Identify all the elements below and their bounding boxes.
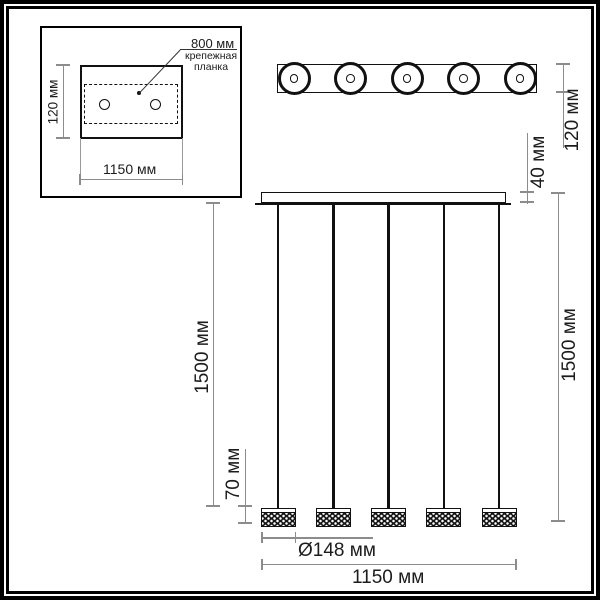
dimension-drawing: 800 мм крепежная планка 120 мм 1150 мм 1…: [0, 0, 600, 600]
page-outer-border: [0, 0, 600, 600]
